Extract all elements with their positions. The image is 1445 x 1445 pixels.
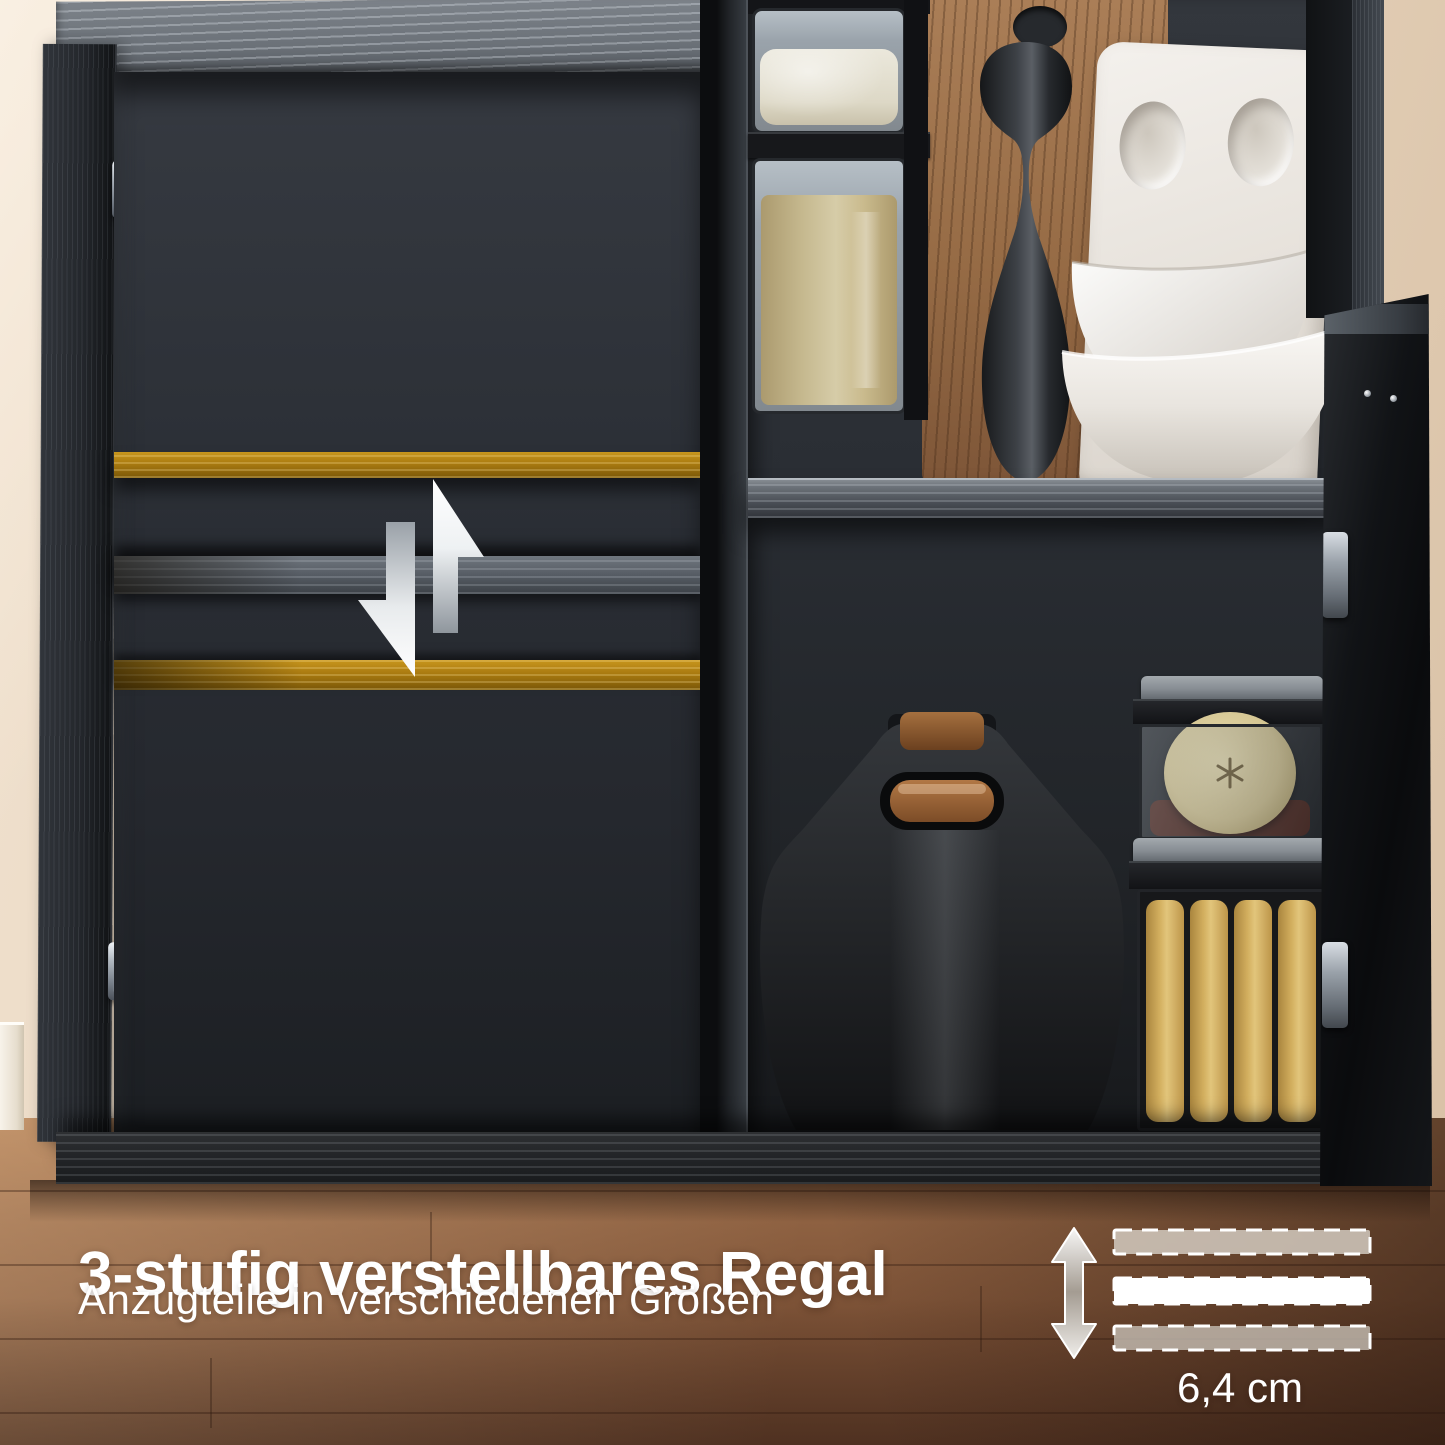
open-right-door bbox=[1320, 294, 1432, 1186]
shelf-height-value: 6,4 cm bbox=[1112, 1364, 1368, 1412]
container-lid-band bbox=[1129, 861, 1331, 889]
shelf-height-annotation bbox=[1040, 1222, 1390, 1372]
open-top-door bbox=[56, 0, 720, 78]
door-screw bbox=[1364, 390, 1371, 397]
subline: Anzugteile in verschiedenen Größen bbox=[78, 1276, 774, 1324]
cabinet-base-plinth bbox=[56, 1132, 1392, 1184]
container-lid bbox=[1141, 676, 1323, 700]
open-left-door bbox=[37, 44, 117, 1142]
jar-contents bbox=[760, 49, 898, 125]
center-divider-panel bbox=[700, 0, 748, 1140]
door-hinge bbox=[1322, 532, 1348, 618]
rolled-snack bbox=[1278, 900, 1316, 1122]
shelf-slot-dashed-bar bbox=[1114, 1230, 1370, 1254]
door-screw bbox=[1390, 395, 1397, 402]
container-rolled-snacks bbox=[1137, 889, 1325, 1131]
cabinet-floor-shadow bbox=[30, 1180, 1430, 1222]
storage-jar-bottom bbox=[752, 158, 906, 414]
jar-rack-frame bbox=[748, 132, 930, 158]
swap-vertical-arrows-icon bbox=[340, 455, 500, 690]
door-hinge bbox=[1322, 942, 1348, 1028]
egg-tray-dimple bbox=[1118, 100, 1188, 191]
rolled-snack bbox=[1146, 900, 1184, 1122]
cabinet-right-frame bbox=[1352, 0, 1384, 318]
storage-jar-top bbox=[752, 8, 906, 134]
rolled-snack bbox=[1234, 900, 1272, 1122]
container-dried-apples bbox=[1139, 724, 1323, 840]
jar-contents bbox=[761, 195, 897, 405]
egg-tray-dimple bbox=[1226, 97, 1296, 188]
stacked-white-bowls bbox=[1058, 232, 1344, 488]
cabinet-side-panel bbox=[1306, 0, 1358, 318]
double-vertical-arrow-icon bbox=[1052, 1228, 1096, 1358]
fixed-shelf-board bbox=[748, 478, 1360, 518]
shelf-slot-dashed-bar bbox=[1114, 1326, 1370, 1350]
product-photo-scene: 3-stufig verstellbares Regal Anzugteile … bbox=[0, 0, 1445, 1445]
container-lid bbox=[1133, 838, 1329, 862]
shelf-slot-dashed-bar bbox=[1114, 1278, 1370, 1304]
rolled-snack bbox=[1190, 900, 1228, 1122]
jar-rack-frame bbox=[904, 0, 928, 420]
storage-basket bbox=[750, 710, 1134, 1142]
wall-baseboard bbox=[0, 1022, 24, 1130]
